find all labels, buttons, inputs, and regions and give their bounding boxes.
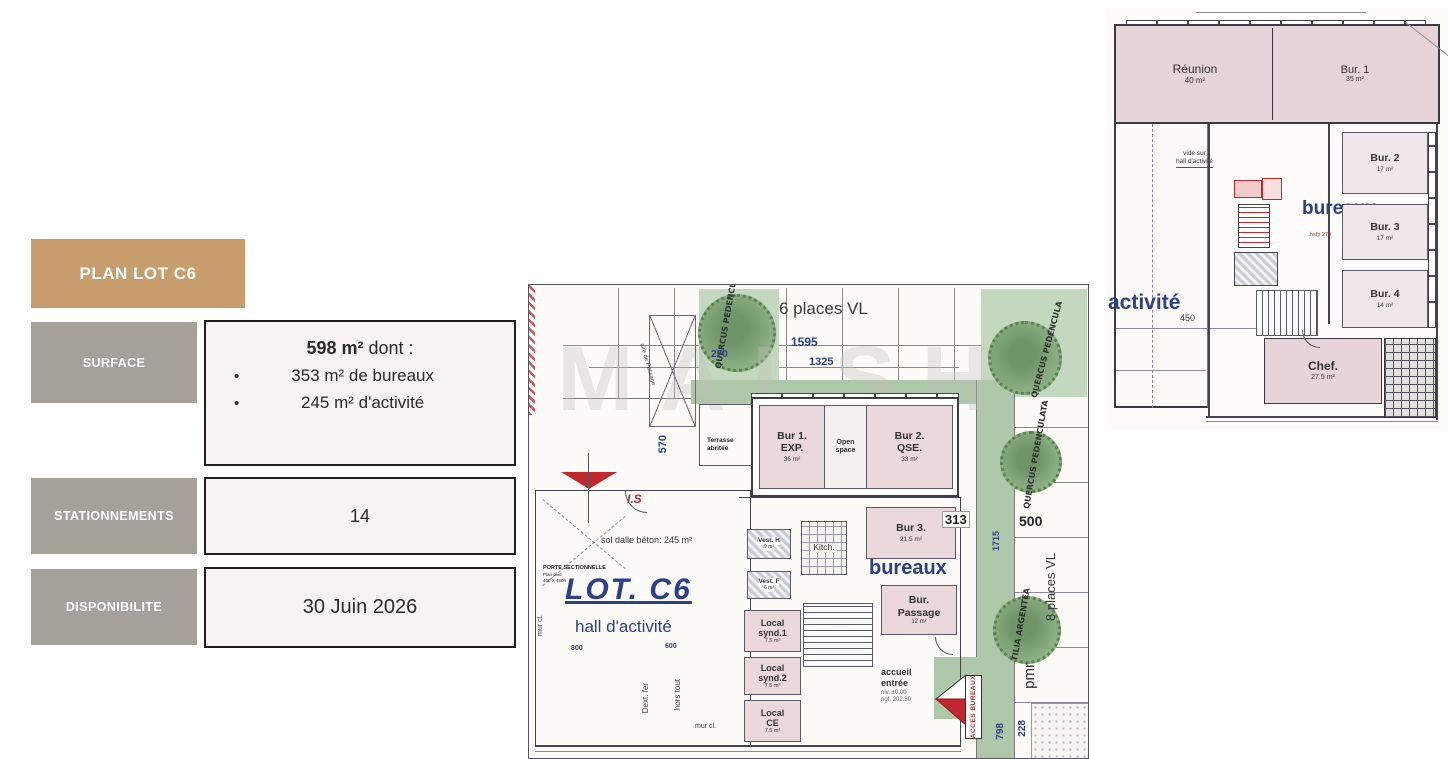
- room-subname: synd.2: [758, 673, 787, 683]
- disponibilite-label: DISPONIBILITE: [31, 569, 197, 645]
- stationnements-label-text: STATIONNEMENTS: [54, 509, 174, 523]
- surface-value: 598 m² dont : •353 m² de bureaux •245 m²…: [204, 320, 516, 466]
- dimension-450: 450: [1180, 313, 1195, 323]
- exterior-wall: [1436, 124, 1438, 420]
- room-reunion: Réunion 40 m²: [1118, 28, 1273, 120]
- dimension-228: 228: [1017, 720, 1028, 737]
- lot-title: LOT. C6: [565, 573, 692, 607]
- void-dashed-line: [1152, 124, 1154, 408]
- terrasse-line2: abritée: [707, 445, 734, 453]
- surface-label: SURFACE: [31, 322, 197, 403]
- accueil-line1: accueil: [881, 667, 912, 678]
- room-name: Local: [761, 618, 785, 628]
- top-band: Réunion 40 m² Bur. 1 35 m²: [1114, 24, 1440, 124]
- room-subname: space: [836, 447, 856, 455]
- bottom-wall-outer: [1206, 421, 1438, 422]
- dimension-570: 570: [657, 435, 669, 453]
- disponibilite-label-text: DISPONIBILITE: [66, 600, 162, 614]
- room-area: 6 m²: [764, 586, 774, 592]
- dimension-line: [1116, 370, 1206, 371]
- staircase: [803, 603, 873, 667]
- surface-bullet-1-text: 353 m² de bureaux: [239, 366, 514, 386]
- dimension-1595: 1595: [791, 335, 818, 349]
- porte-line1: PORTE SECTIONNELLE: [543, 565, 606, 572]
- room-area: 7.5 m²: [765, 683, 781, 689]
- boundary-hatch: [529, 285, 535, 415]
- shaft-block: [1234, 252, 1278, 286]
- page-title-text: PLAN LOT C6: [80, 264, 197, 284]
- room-name: Bur 3.: [896, 522, 926, 534]
- window-strip: [1428, 132, 1436, 328]
- room-area: 9 m²: [764, 545, 774, 551]
- hsfp-note: hsfp 279: [1310, 232, 1331, 238]
- room-kitchen: Kitch.: [801, 521, 847, 575]
- page-title: PLAN LOT C6: [31, 239, 245, 308]
- terrasse-line1: Terrasse: [707, 437, 734, 445]
- surface-bullet-1: •353 m² de bureaux: [206, 366, 514, 386]
- room-area: 27.5 m²: [1311, 374, 1335, 382]
- dimension-313: 313: [942, 511, 970, 528]
- room-name: Bur.: [909, 594, 929, 606]
- maneuver-area-box: [649, 315, 696, 427]
- hall-label: hall d'activité: [575, 617, 672, 637]
- entrance-arrow-icon: [561, 472, 617, 489]
- pmr-label: pmr: [1021, 663, 1038, 689]
- terrasse-room: [699, 404, 757, 466]
- interior-wall: [1328, 124, 1330, 324]
- room-subname: Passage: [898, 607, 941, 619]
- terrasse-label: Terrasse abritée: [707, 437, 734, 454]
- slab-note: sol dalle béton: 245 m²: [601, 535, 692, 545]
- dext-fer-label: Dext. fer: [641, 683, 650, 713]
- room-vest-f: Vest. F 6 m²: [747, 571, 791, 599]
- surface-total-bold: 598 m²: [306, 338, 363, 358]
- brochure-page: PLAN LOT C6 SURFACE 598 m² dont : •353 m…: [0, 0, 1450, 759]
- room-open-space: Open space: [825, 405, 867, 489]
- bottom-wall-outer: [535, 751, 961, 752]
- parking-8-label: 8 places VL: [1043, 553, 1058, 621]
- room-area: 7.5 m²: [765, 638, 781, 644]
- room-name: Bur. 1: [1341, 64, 1370, 77]
- room-name: Local: [761, 708, 785, 718]
- hors-tout-label: hors tout: [673, 679, 682, 710]
- room-area: 36 m²: [784, 456, 801, 463]
- access-arrow-icon: [934, 673, 968, 729]
- access-bureaux-label: ACCES BUREAUX: [965, 675, 982, 739]
- axis-line: [588, 453, 589, 523]
- room-name: Bur. 2: [1370, 152, 1399, 164]
- dimension-500: 500: [1019, 513, 1042, 529]
- disponibilite-value-text: 30 Juin 2026: [303, 596, 418, 619]
- room-name: Bur. 3: [1370, 221, 1399, 233]
- room-bur3-up: Bur. 3 17 m²: [1342, 204, 1428, 260]
- surface-bullet-2: •245 m² d'activité: [206, 393, 514, 413]
- room-name: Réunion: [1173, 63, 1218, 77]
- ground-floor-plan: QUERCUS PEDENCULA QUERCUS PEDENCULA QUER…: [528, 284, 1089, 759]
- room-bur1-up: Bur. 1 35 m²: [1274, 28, 1436, 120]
- room-area: 7.5 m²: [765, 728, 781, 734]
- room-name: Bur. 4: [1370, 288, 1399, 300]
- stair-red: [1238, 204, 1270, 248]
- dimension-798: 798: [995, 723, 1006, 740]
- room-bur4-up: Bur. 4 14 m²: [1342, 270, 1428, 328]
- wc-block: [1262, 178, 1282, 200]
- accueil-line2: entrée: [881, 678, 912, 689]
- room-bur2-up: Bur. 2 17 m²: [1342, 132, 1428, 194]
- room-name: Open: [837, 439, 855, 447]
- room-subname: synd.1: [758, 628, 787, 638]
- room-local-synd2: Local synd.2 7.5 m²: [744, 657, 801, 695]
- room-area: 12 m²: [911, 619, 926, 626]
- wc-block: [1234, 180, 1262, 198]
- dimension-600: 600: [665, 643, 677, 650]
- room-bur1-exp: Bur 1. EXP. 36 m²: [759, 405, 825, 489]
- dimension-line: [1116, 328, 1276, 329]
- disponibilite-value: 30 Juin 2026: [204, 567, 516, 648]
- room-area: 33 m²: [901, 456, 918, 463]
- bottom-wall: [535, 745, 961, 747]
- access-bureaux-text: ACCES BUREAUX: [970, 675, 977, 738]
- stationnements-value: 14: [204, 477, 516, 555]
- dimension-1325: 1325: [809, 356, 833, 368]
- room-vest-h: Vest. H 9 m²: [747, 529, 791, 559]
- room-area: 35 m²: [1346, 76, 1364, 84]
- stationnements-label: STATIONNEMENTS: [31, 478, 197, 554]
- room-area: 17 m²: [1377, 166, 1394, 173]
- mur-cl-left: mur cl.: [537, 615, 544, 636]
- accueil-line4: ngf. 202.80: [881, 697, 912, 705]
- bureaux-label: bureaux: [869, 557, 947, 580]
- room-area: 40 m²: [1185, 76, 1205, 85]
- room-subname: EXP.: [781, 442, 804, 454]
- surface-bullet-2-text: 245 m² d'activité: [239, 393, 514, 413]
- accueil-note: accueil entrée niv. ±0.00 ngf. 202.80: [881, 667, 912, 705]
- activite-label: activité: [1108, 291, 1180, 315]
- tiled-area: [1384, 338, 1436, 418]
- mur-cl-bottom: mur cl.: [695, 723, 716, 730]
- room-local-ce: Local CE 7.5 m²: [744, 700, 801, 742]
- parking-label: 6 places VL: [779, 299, 868, 319]
- surface-total-rest: dont :: [364, 338, 414, 358]
- office-wing: Bur 1. EXP. 36 m² Open space Bur 2. QSE.…: [751, 397, 959, 497]
- surface-total: 598 m² dont :: [206, 338, 514, 359]
- room-name: Bur 1.: [777, 430, 807, 442]
- room-subname: QSE.: [897, 442, 922, 454]
- dimension-1715: 1715: [991, 531, 1001, 551]
- room-local-synd1: Local synd.1 7.5 m²: [744, 610, 801, 652]
- room-subname: CE: [766, 718, 779, 728]
- surface-label-text: SURFACE: [83, 356, 146, 370]
- dimension-line: [1196, 12, 1366, 13]
- room-bur2-qse: Bur 2. QSE. 33 m²: [867, 405, 953, 489]
- room-area: 21.5 m²: [900, 536, 922, 543]
- room-area: 14 m²: [1377, 302, 1394, 309]
- room-name: Kitch.: [811, 543, 836, 553]
- dimension-800: 800: [571, 645, 583, 652]
- interior-wall: [1208, 124, 1210, 416]
- stationnements-value-text: 14: [350, 506, 370, 527]
- room-name: Chef.: [1308, 360, 1338, 374]
- room-area: 17 m²: [1377, 235, 1394, 242]
- room-name: Bur 2.: [895, 430, 925, 442]
- accueil-line3: niv. ±0.00: [881, 690, 912, 698]
- dimension-270: 270: [711, 349, 728, 360]
- room-passage: Bur. Passage 12 m²: [881, 585, 957, 635]
- room-name: Local: [761, 663, 785, 673]
- first-floor-plan: Réunion 40 m² Bur. 1 35 m² vide sur hall…: [1106, 8, 1448, 430]
- gravel-area: [1031, 703, 1089, 759]
- room-chef: Chef. 27.5 m²: [1264, 338, 1382, 404]
